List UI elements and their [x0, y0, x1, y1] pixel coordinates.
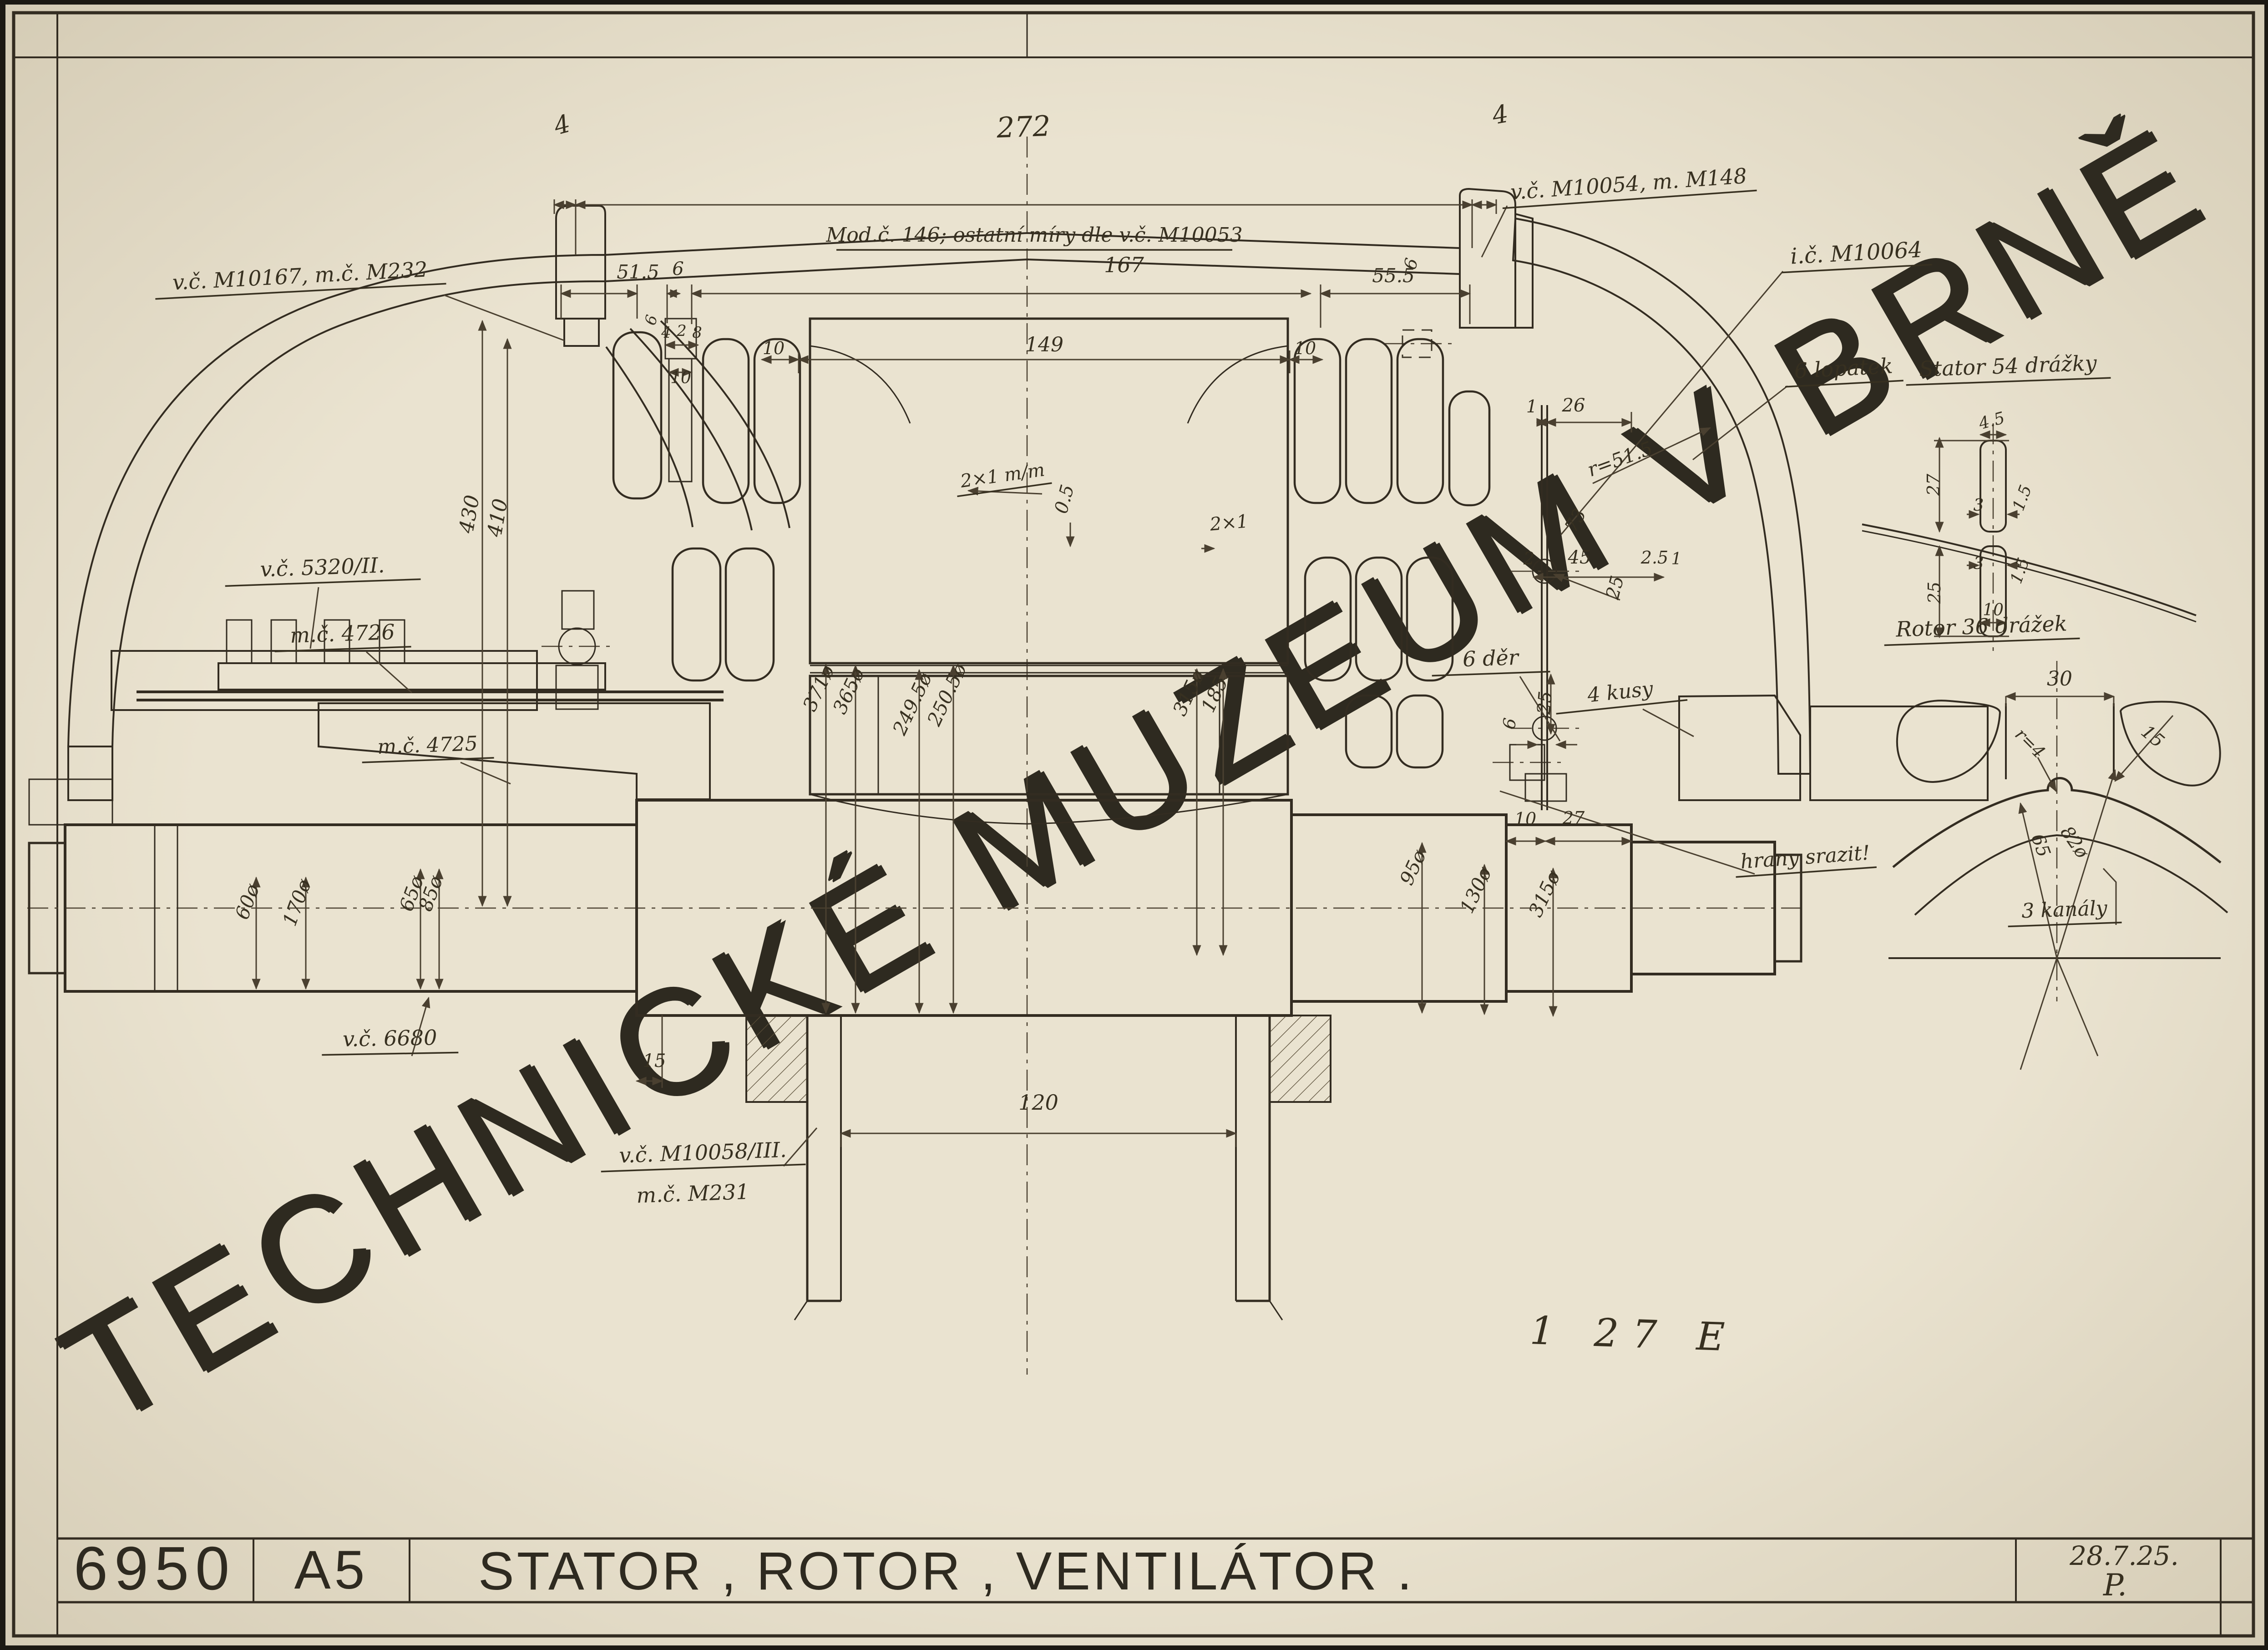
note-model: Mod.č. 146; ostatní míry dle v.č. M10053: [825, 223, 1242, 247]
drawing-title: STATOR , ROTOR , VENTILÁTOR .: [478, 1541, 1415, 1601]
dim-1-disc: 1: [1526, 396, 1537, 416]
dim-10-b: 10: [1294, 338, 1316, 358]
signature: P.: [2103, 1568, 2127, 1603]
dim-4-w: 4: [661, 324, 671, 342]
dim-2: 2: [1523, 548, 1534, 569]
note-holes: 6 děr: [1462, 645, 1520, 671]
dim-30-rotor: 30: [2047, 667, 2072, 690]
dim-2-w: 2: [676, 322, 687, 340]
dim-27-hub: 27: [1562, 808, 1585, 828]
ref-spider: m.č. 4725: [377, 732, 478, 759]
ref-brush: m.č. 4726: [289, 619, 395, 648]
dim-10-hub: 10: [1514, 809, 1536, 829]
dim-272: 272: [996, 109, 1051, 144]
format-label: A5: [294, 1539, 369, 1600]
note-channels: 3 kanály: [2021, 897, 2108, 923]
drawing-number: 6950: [74, 1534, 236, 1603]
dim-3-slot-a: 3: [1974, 496, 1984, 515]
dim-25-b: 25: [1534, 690, 1556, 716]
drawing-canvas: TECHNICKÉ MUZEUM V BRNĚ TECHNICKÉ MUZEUM…: [0, 0, 2268, 1650]
dim-6-top: 6: [672, 259, 683, 279]
dim-51-5: 51.5: [617, 261, 659, 283]
dim-149: 149: [1025, 333, 1063, 356]
dim-27-slot: 27: [1924, 473, 1944, 496]
dim-25-slot: 25: [1924, 582, 1944, 604]
note-blades: 6 lopatek: [1794, 353, 1893, 383]
dim-10-w: 10: [670, 369, 691, 387]
dim-10-slot: 10: [1983, 601, 2004, 619]
dim-2-5: 2.5: [1640, 548, 1668, 568]
date-label: 28.7.25.: [2069, 1540, 2179, 1571]
dim-1-b: 1: [1671, 550, 1682, 569]
dim-3-slot-b: 3: [1974, 554, 1984, 573]
dim-15-bot: 15: [643, 1051, 666, 1071]
ref-shaft: v.č. 6680: [343, 1025, 437, 1051]
faint-stamp: 1 27 E: [1529, 1308, 1739, 1361]
ref-hub: m.č. M231: [636, 1179, 749, 1208]
dim-10-a: 10: [763, 338, 785, 358]
dim-2x1: 2×1: [1209, 511, 1249, 535]
dim-8-w: 8: [692, 324, 702, 342]
dim-120: 120: [1018, 1090, 1058, 1115]
ref-ring: v.č. 5320/II.: [260, 553, 385, 582]
dim-45: 45: [1568, 547, 1591, 568]
dim-26: 26: [1562, 395, 1585, 416]
dim-167: 167: [1104, 253, 1144, 277]
drawing-sheet: TECHNICKÉ MUZEUM V BRNĚ TECHNICKÉ MUZEUM…: [0, 0, 2268, 1650]
